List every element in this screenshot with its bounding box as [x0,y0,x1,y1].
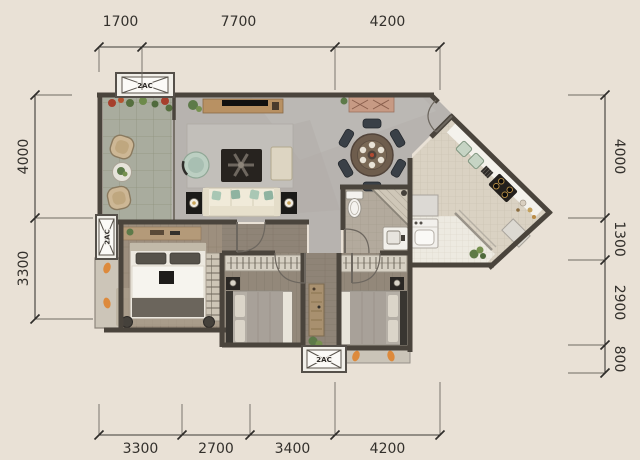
bed-icon [226,291,292,345]
dim-top-2: 7700 [221,14,257,30]
dining-table-icon [351,134,393,176]
side-table [271,147,292,180]
plant-icon [127,229,134,236]
shelf-unit [309,284,324,336]
nightstand [390,277,404,290]
dim-right-1: 4000 [611,139,627,175]
foot-roll [283,292,292,344]
dim-right-4: 800 [611,346,627,373]
dimension-bottom: 3300 2700 3400 4200 [95,382,445,457]
dimension-left: 4000 3300 [16,91,93,324]
dim-bottom-1: 3300 [123,441,159,457]
ac-unit-bottom: 2AC [302,346,346,372]
pillow [136,253,166,264]
lamp-icon [394,280,400,286]
bed-icon [341,291,407,345]
pillow [388,295,398,317]
foot-blanket [132,298,204,317]
sofa-side-table [186,192,202,214]
sofa-icon [203,188,280,216]
dim-left-2: 3300 [16,251,32,287]
bed-tray [159,271,174,284]
ac-label: 2AC [104,229,112,244]
fridge-icon [412,195,438,216]
wardrobe [341,255,407,272]
sofa-side-table [281,192,297,214]
shower-head-icon [401,190,407,196]
pillow [388,320,398,342]
dim-right-2: 1300 [611,221,627,257]
bedroom-2 [225,255,303,345]
dim-top-3: 4200 [370,14,406,30]
bedroom3-ledge [341,350,410,363]
nightstand [226,277,240,290]
dimension-right: 4000 1300 2900 800 [568,91,627,378]
headboard [400,291,407,345]
ac-label: 2AC [316,356,331,364]
tv-icon [222,100,268,106]
headboard [226,291,233,345]
wardrobe [225,255,303,271]
dim-top-1: 1700 [103,14,139,30]
pillow [170,253,200,264]
pillow [235,320,245,342]
ac-label: 2AC [137,82,152,90]
bed-icon [130,243,206,319]
dim-left-1: 4000 [16,139,32,175]
dim-bottom-4: 4200 [370,441,406,457]
dresser-desk [123,227,201,240]
dim-bottom-3: 3400 [275,441,311,457]
pillow [235,295,245,317]
floor-plan-canvas: 2AC 2AC 2AC 1700 7700 4200 3300 2700 340… [0,0,640,460]
ac-unit-top: 2AC [116,73,174,97]
washing-machine-icon [411,219,438,248]
ac-unit-left: 2AC [96,215,117,259]
pouf-icon [204,317,215,328]
floor-plan-page: 2AC 2AC 2AC 1700 7700 4200 3300 2700 340… [0,0,640,460]
balcony-table-icon [113,163,132,182]
ceiling-fan-icon [221,149,262,182]
plant-icon [341,98,348,105]
dim-right-3: 2900 [611,285,627,321]
vanity-sink-icon [383,227,408,250]
lamp-icon [230,280,236,286]
dim-bottom-2: 2700 [198,441,234,457]
foot-roll [341,292,350,344]
tv-console [203,99,283,113]
